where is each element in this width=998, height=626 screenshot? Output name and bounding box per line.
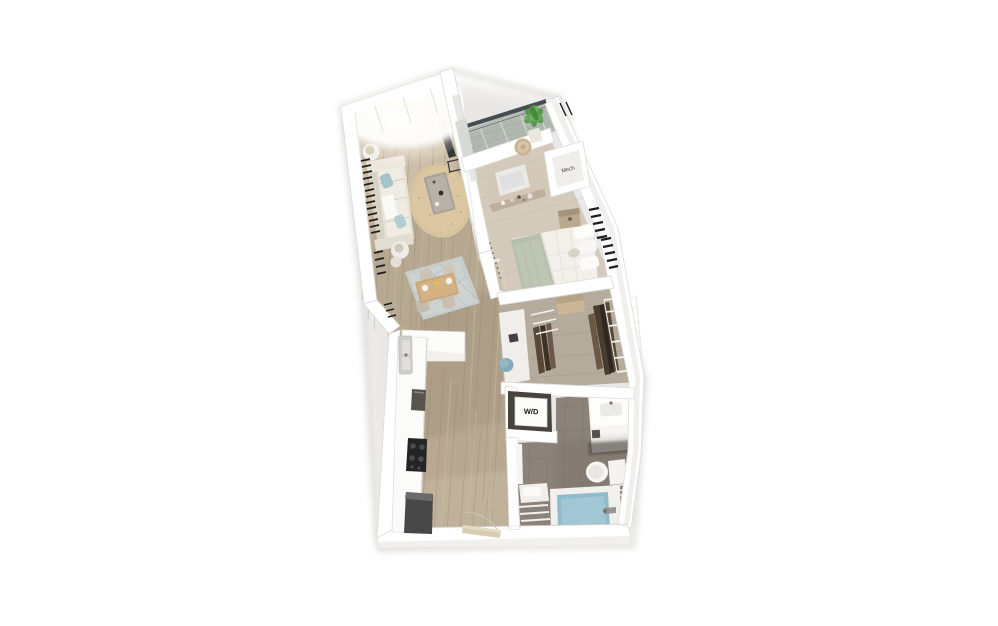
svg-text:W/D: W/D (524, 407, 539, 417)
